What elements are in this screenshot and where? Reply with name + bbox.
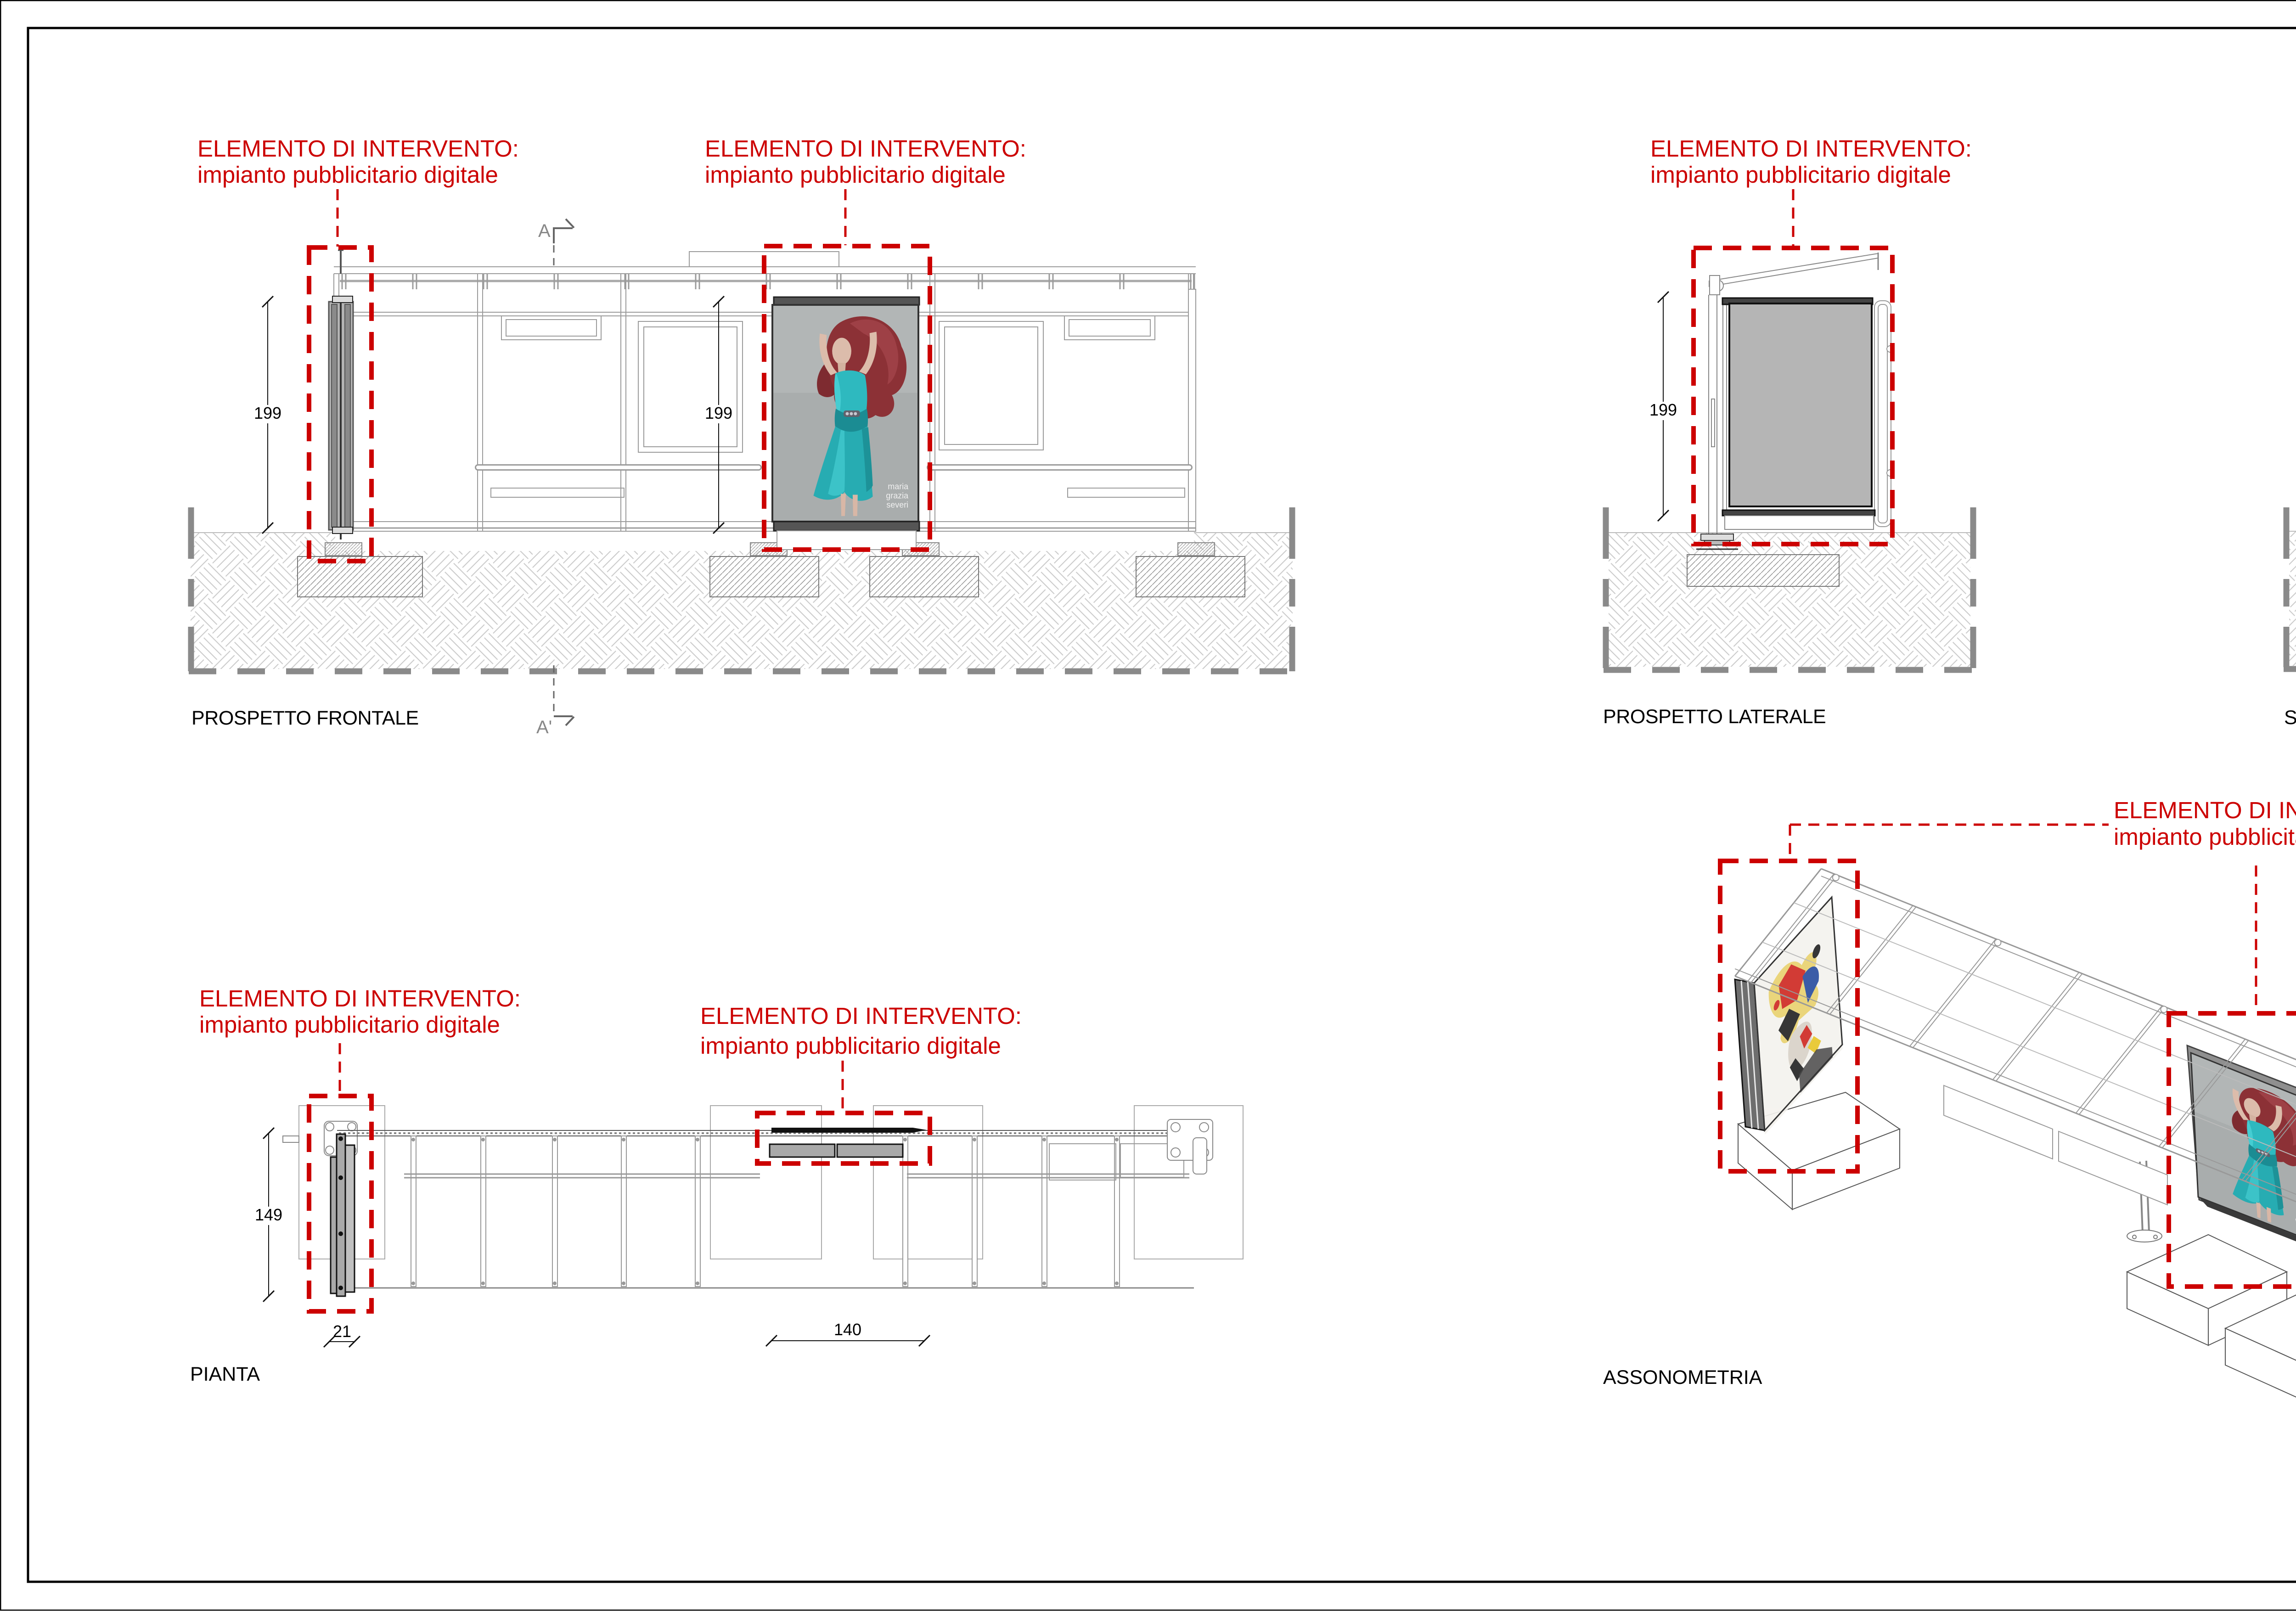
svg-text:21: 21 — [333, 1322, 351, 1341]
svg-text:140: 140 — [834, 1320, 861, 1339]
svg-text:ELEMENTO DI INTERVENTO:: ELEMENTO DI INTERVENTO: — [2114, 797, 2296, 823]
svg-text:ELEMENTO DI INTERVENTO:: ELEMENTO DI INTERVENTO: — [700, 1003, 1022, 1029]
svg-text:A': A' — [536, 717, 552, 737]
svg-text:impianto pubblicitario digital: impianto pubblicitario digitale — [700, 1033, 1001, 1059]
svg-text:PROSPETTO FRONTALE: PROSPETTO FRONTALE — [191, 707, 419, 729]
svg-text:A: A — [538, 221, 551, 241]
svg-text:ELEMENTO DI INTERVENTO:: ELEMENTO DI INTERVENTO: — [199, 985, 521, 1012]
svg-text:ELEMENTO DI INTERVENTO:: ELEMENTO DI INTERVENTO: — [705, 135, 1026, 162]
svg-text:PROSPETTO LATERALE: PROSPETTO LATERALE — [1603, 706, 1826, 728]
svg-text:199: 199 — [254, 404, 281, 422]
svg-text:impianto pubblicitario digital: impianto pubblicitario digitale — [199, 1012, 500, 1038]
svg-text:impianto pubblicitario digital: impianto pubblicitario digitale — [2114, 824, 2296, 850]
svg-text:ASSONOMETRIA: ASSONOMETRIA — [1603, 1366, 1762, 1388]
svg-text:199: 199 — [1649, 400, 1677, 419]
svg-text:impianto pubblicitario digital: impianto pubblicitario digitale — [197, 162, 498, 188]
svg-text:199: 199 — [705, 404, 732, 422]
svg-text:PIANTA: PIANTA — [190, 1363, 260, 1385]
svg-text:impianto pubblicitario digital: impianto pubblicitario digitale — [1650, 162, 1951, 188]
svg-text:ELEMENTO DI INTERVENTO:: ELEMENTO DI INTERVENTO: — [1650, 135, 1972, 162]
svg-text:ELEMENTO DI INTERVENTO:: ELEMENTO DI INTERVENTO: — [197, 135, 519, 162]
svg-text:impianto pubblicitario digital: impianto pubblicitario digitale — [705, 162, 1006, 188]
svg-text:149: 149 — [255, 1205, 282, 1224]
svg-text:SEZIONE A-A': SEZIONE A-A' — [2284, 707, 2296, 729]
